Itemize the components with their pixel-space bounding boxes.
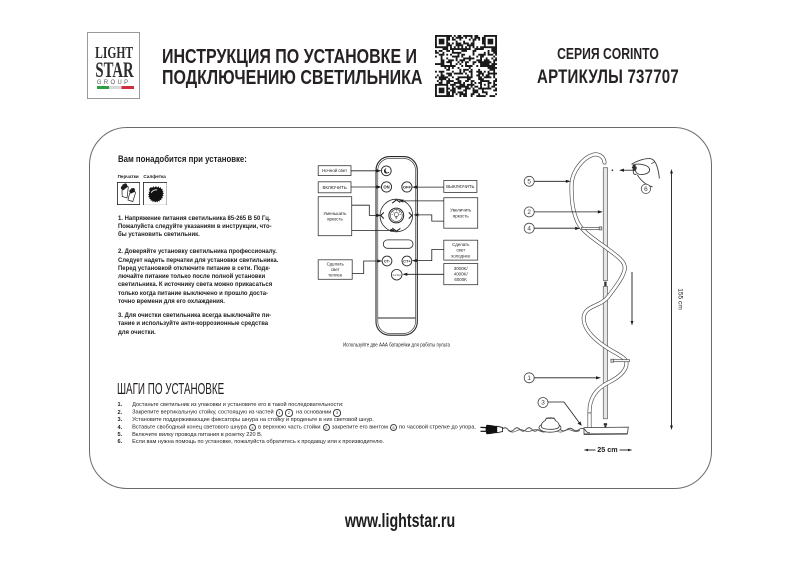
svg-text:4000K/: 4000K/ xyxy=(454,272,469,277)
svg-text:5: 5 xyxy=(527,178,531,185)
svg-text:CT+: CT+ xyxy=(403,259,411,264)
svg-text:2: 2 xyxy=(527,209,531,216)
svg-text:Используйте две ААА батарейки: Используйте две ААА батарейки для работы… xyxy=(343,342,450,349)
svg-text:Сделать: Сделать xyxy=(452,242,470,247)
svg-text:яркость: яркость xyxy=(327,217,343,222)
svg-text:свет: свет xyxy=(331,267,340,272)
svg-text:6000K: 6000K xyxy=(454,277,467,282)
svg-text:3000K/: 3000K/ xyxy=(454,266,469,271)
svg-text:Уменьшить: Уменьшить xyxy=(323,211,347,216)
svg-text:Ночной свет: Ночной свет xyxy=(322,168,347,173)
svg-text:4: 4 xyxy=(527,225,531,232)
svg-text:OFF: OFF xyxy=(403,185,412,190)
svg-text:Sunlike: Sunlike xyxy=(392,273,401,277)
svg-text:1: 1 xyxy=(527,375,531,382)
svg-text:ВЫКЛЮЧИТЬ: ВЫКЛЮЧИТЬ xyxy=(446,184,474,189)
svg-text:Увеличить: Увеличить xyxy=(450,208,472,213)
svg-text:CT-: CT- xyxy=(384,259,391,264)
svg-text:ON: ON xyxy=(383,185,389,190)
svg-text:ВКЛЮЧИТЬ: ВКЛЮЧИТЬ xyxy=(322,185,346,190)
svg-text:6: 6 xyxy=(644,186,648,193)
svg-text:свет: свет xyxy=(456,248,465,253)
svg-text:Сделать: Сделать xyxy=(327,262,345,267)
svg-text:3: 3 xyxy=(541,400,545,407)
svg-text:155 cm: 155 cm xyxy=(677,288,684,310)
svg-text:теплее: теплее xyxy=(328,273,343,278)
svg-text:холоднее: холоднее xyxy=(451,253,471,258)
svg-text:яркость: яркость xyxy=(453,213,469,218)
svg-text:25 cm: 25 cm xyxy=(597,445,617,454)
